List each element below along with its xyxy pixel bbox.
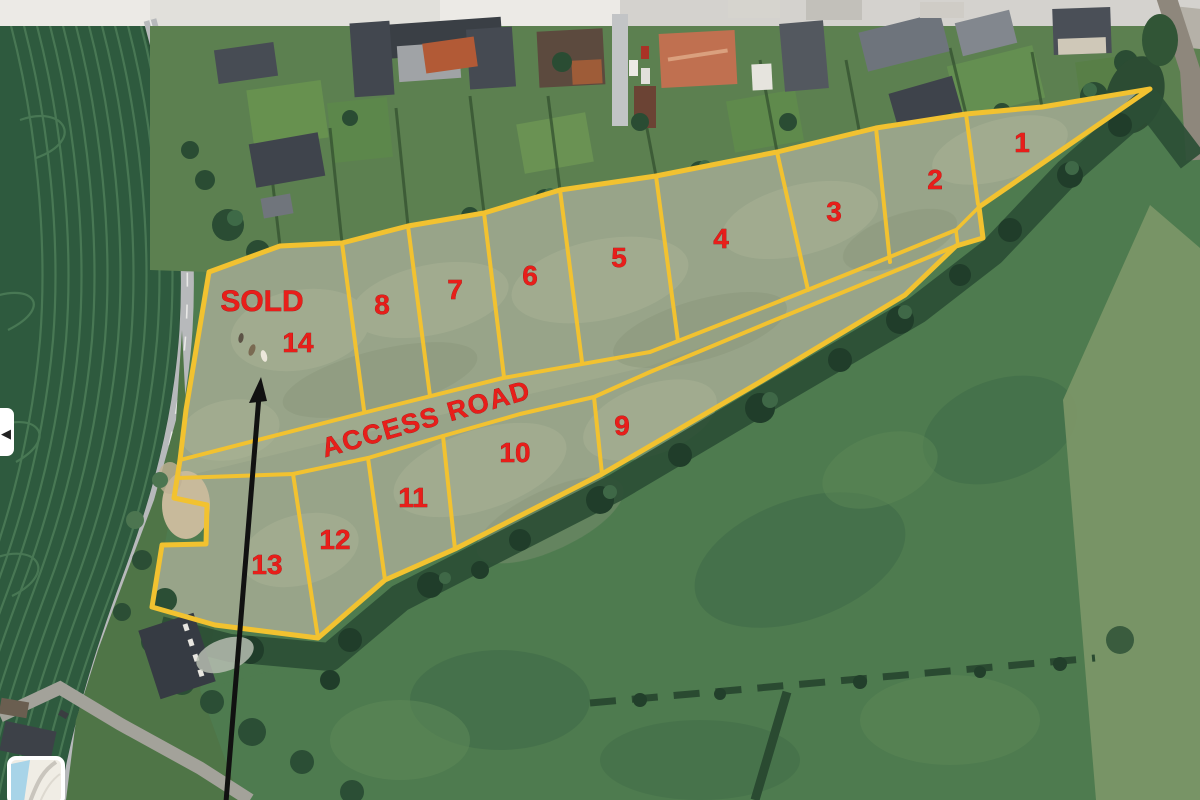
plot-label-7: 7 bbox=[447, 274, 463, 305]
plot-label-14: 14 bbox=[282, 327, 314, 358]
plot-label-13: 13 bbox=[251, 549, 282, 580]
plot-label-12: 12 bbox=[319, 524, 350, 555]
left-panel-toggle[interactable]: ◀ bbox=[0, 408, 14, 456]
sold-label: SOLD bbox=[220, 285, 303, 318]
plot-label-2: 2 bbox=[927, 164, 943, 195]
plot-label-4: 4 bbox=[713, 223, 729, 254]
plot-label-3: 3 bbox=[826, 196, 842, 227]
plot-label-10: 10 bbox=[499, 437, 530, 468]
plot-label-11: 11 bbox=[398, 482, 428, 513]
plot-label-1: 1 bbox=[1014, 127, 1030, 158]
satellite-map: 1 2 3 4 5 6 7 8 9 10 11 12 13 14 SOLD AC… bbox=[0, 0, 1200, 800]
chevron-left-icon: ◀ bbox=[1, 426, 11, 441]
plot-label-6: 6 bbox=[522, 260, 538, 291]
plot-label-9: 9 bbox=[614, 410, 630, 441]
plot-label-8: 8 bbox=[374, 289, 390, 320]
plot-region-13 bbox=[152, 474, 318, 638]
plot-label-5: 5 bbox=[611, 242, 627, 273]
inset-map-thumbnail[interactable] bbox=[7, 756, 65, 800]
